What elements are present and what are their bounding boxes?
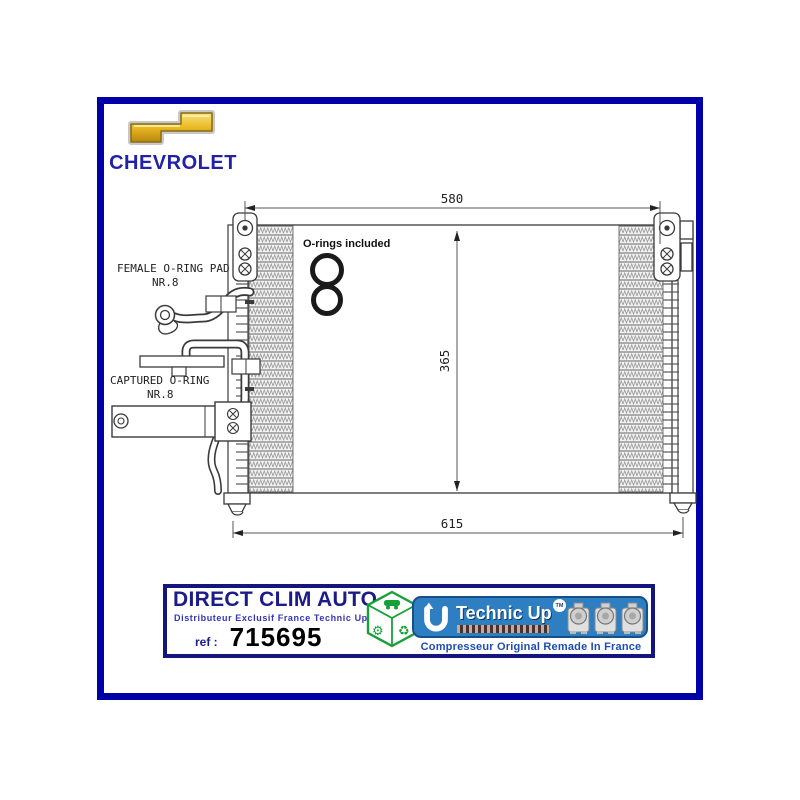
chevrolet-bowtie-icon [105,98,255,153]
trademark-badge: TM [553,599,566,612]
reference-row: ref : 715695 [195,622,322,653]
o-rings-note: O-rings included [303,238,390,250]
dimension-bottom: 615 [233,516,683,538]
dim-top-value: 580 [441,191,464,206]
condenser-core [228,225,693,493]
mounting-foot-left [224,493,250,515]
distributor-name: DIRECT CLIM AUTO [173,588,377,612]
gear-icon: ⚙ [372,623,384,638]
captured-oring-label: CAPTURED O-RING [110,374,209,387]
technicup-u-icon [419,600,453,634]
technicup-tagline-bar [457,625,549,633]
dim-bottom-value: 615 [441,516,464,531]
mounting-foot-right [670,493,696,513]
ref-label: ref : [195,635,218,649]
footer-band: DIRECT CLIM AUTO Distributeur Exclusif F… [163,584,655,658]
compressor-icon [593,602,618,635]
compressor-icon [620,602,645,635]
captured-oring-sub: NR.8 [147,388,174,401]
recycle-icon: ♻ [398,623,410,638]
technicup-banner: Technic Up TM [412,596,648,638]
brand-name: CHEVROLET [107,152,239,175]
condenser-technical-drawing: O-rings included 580 365 615 [100,182,710,557]
technicup-cube-icon: ⚙ ♻ [365,589,419,651]
bracket-top-left [233,213,257,281]
female-oring-label: FEMALE O-RING PAD [117,262,230,275]
compressor-icon [566,602,591,635]
ref-number: 715695 [230,622,323,653]
compressor-icons [566,602,645,635]
product-image-canvas: CHEVROLET [0,0,800,800]
dim-side-value: 365 [437,350,452,373]
female-oring-sub: NR.8 [152,276,179,289]
technicup-name: Technic Up [456,603,552,624]
technicup-caption: Compresseur Original Remade In France [415,641,647,653]
